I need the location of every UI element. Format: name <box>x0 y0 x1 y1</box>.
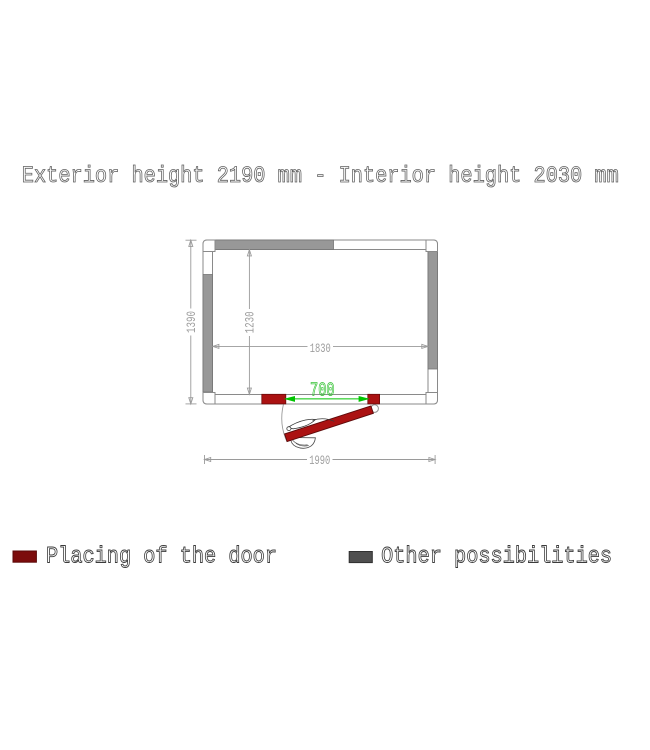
svg-text:1990: 1990 <box>309 454 330 468</box>
svg-text:1830: 1830 <box>310 342 331 356</box>
svg-text:700: 700 <box>310 380 335 402</box>
svg-text:Other possibilities: Other possibilities <box>381 544 612 570</box>
svg-text:1390: 1390 <box>185 311 199 333</box>
svg-text:1230: 1230 <box>244 311 258 333</box>
svg-text:Exterior height 2190 mm - Inte: Exterior height 2190 mm - Interior heigh… <box>22 163 619 189</box>
svg-text:Placing of the door: Placing of the door <box>46 544 277 570</box>
